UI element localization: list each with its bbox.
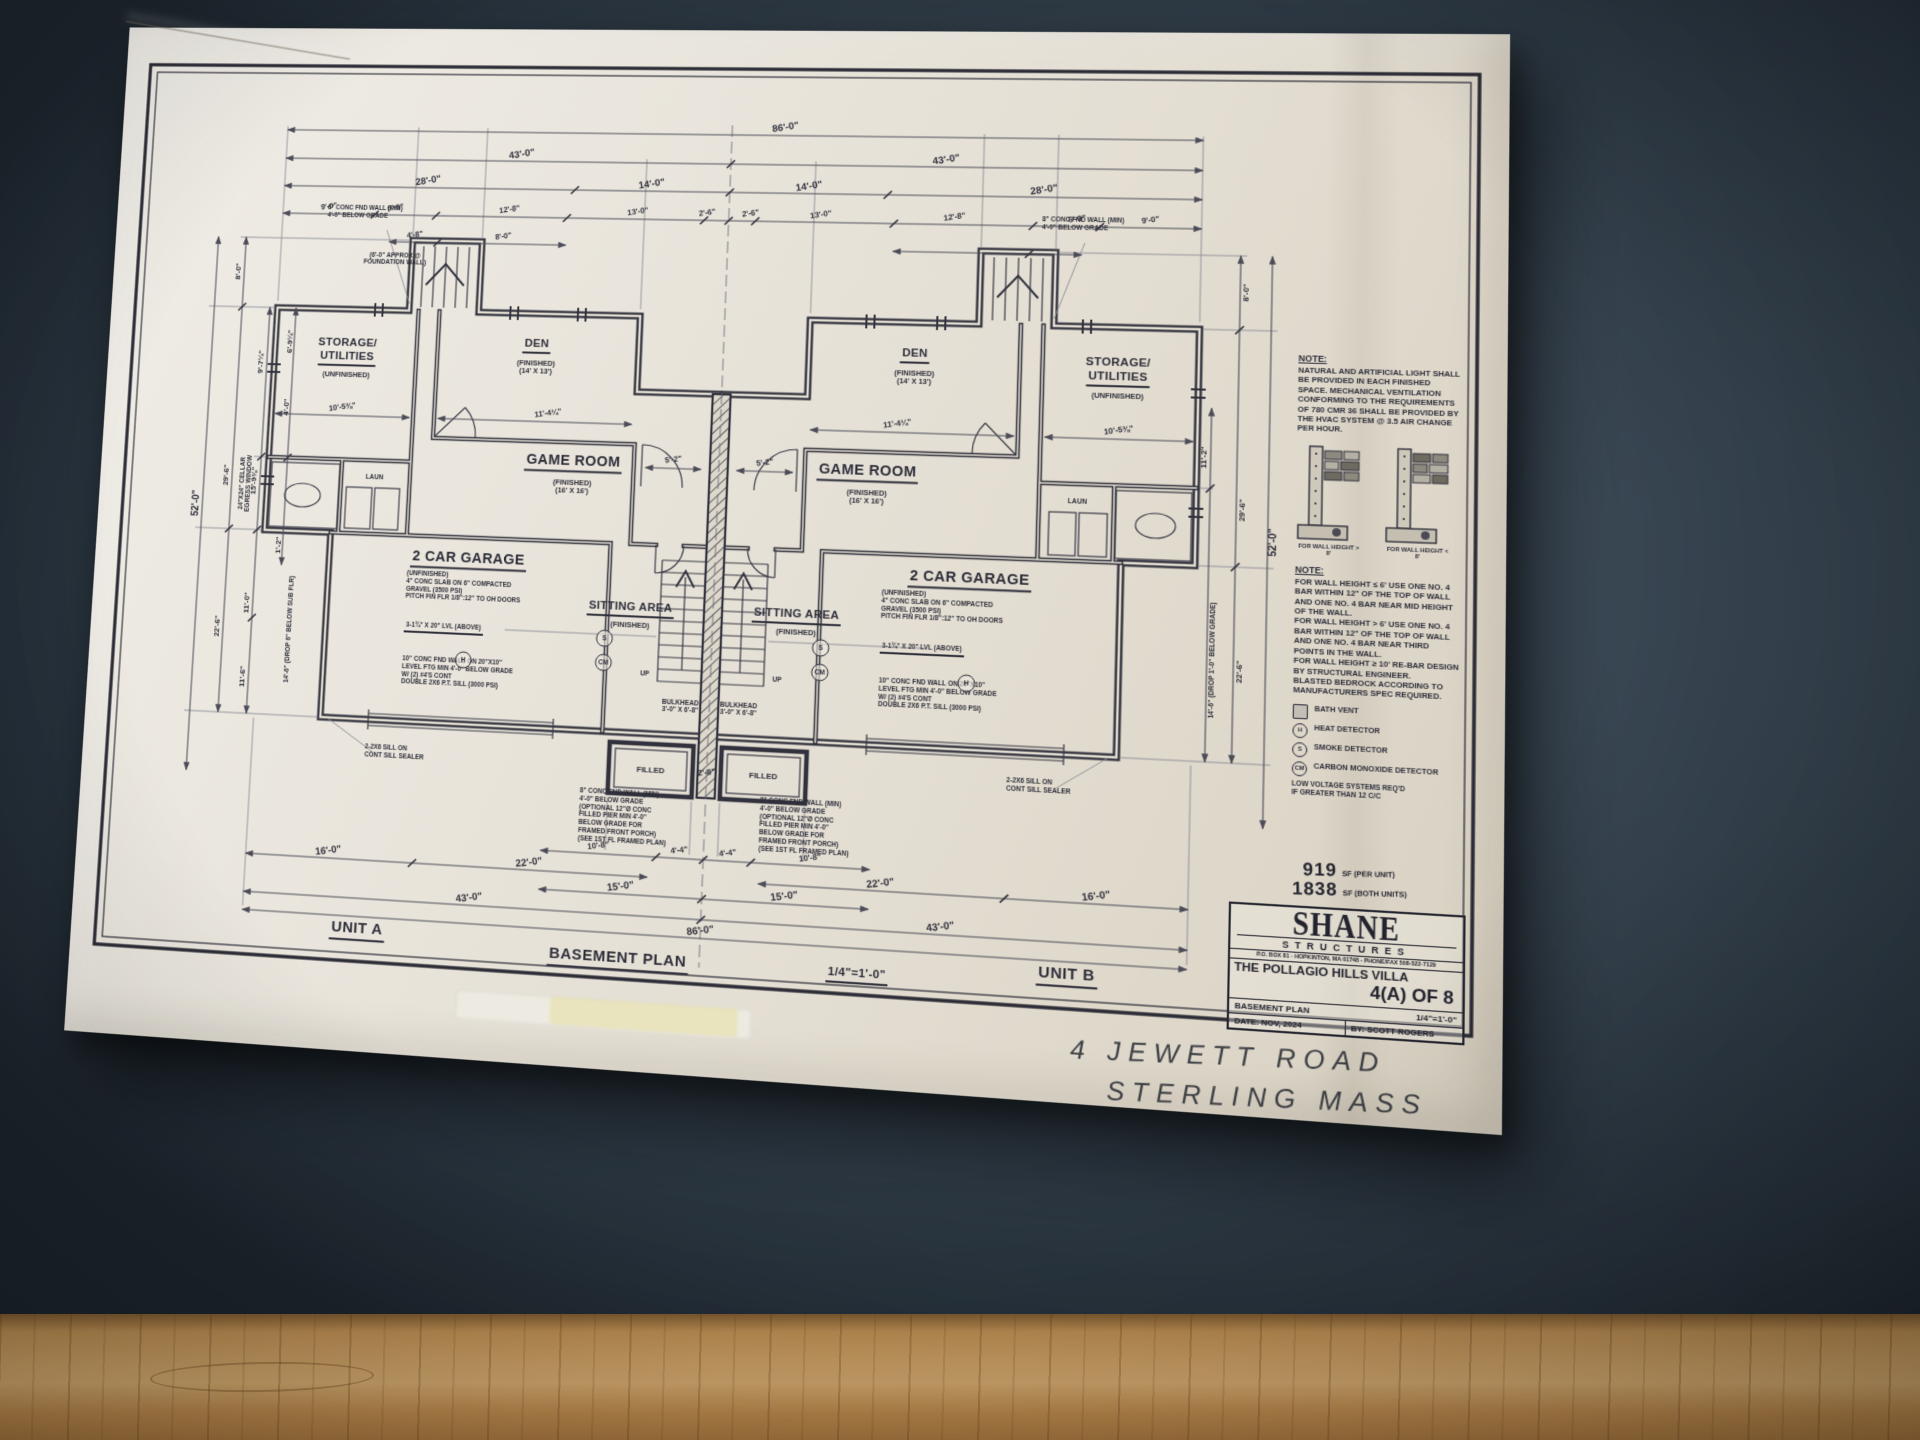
room-label-game-room: GAME ROOM	[524, 452, 623, 474]
note-rebar: FOR WALL HEIGHT ≤ 6' USE ONE NO. 4 BAR W…	[1293, 577, 1460, 703]
notes-column: NOTE: NATURAL AND ARTIFICIAL LIGHT SHALL…	[1291, 353, 1462, 806]
room-label-den: DEN	[900, 347, 930, 364]
room-sublabel: (FINISHED) (14' X 13')	[894, 369, 935, 387]
square-footage: 919 SF (PER UNIT) 1838 SF (BOTH UNITS)	[1240, 859, 1460, 903]
date-label: DATE:	[1234, 1016, 1259, 1027]
laundry-label: LAUN	[1068, 498, 1087, 506]
up-label: UP	[772, 677, 782, 685]
legend-label: HEAT DETECTOR	[1314, 724, 1380, 736]
legend-label: SMOKE DETECTOR	[1314, 743, 1388, 755]
garage-floor-note: (UNFINISHED) 4" CONC SLAB ON 6" COMPACTE…	[881, 589, 1004, 626]
room-sublabel: (FINISHED) (14' X 13')	[516, 359, 555, 376]
up-label: UP	[640, 671, 649, 679]
garage-floor-note: (UNFINISHED) 4" CONC SLAB ON 6" COMPACTE…	[405, 570, 521, 606]
smoke-detector-icon: S	[1292, 742, 1307, 758]
bulkhead-label: BULKHEAD 3'-0" X 6'-8"	[661, 698, 699, 715]
dim-label: 11'-0"	[242, 592, 252, 613]
area-per-unit-label: SF (PER UNIT)	[1342, 871, 1395, 880]
dim-label: 4'-4"	[670, 846, 688, 857]
room-label-storage: STORAGE/	[318, 336, 377, 350]
room-label-den: DEN	[522, 338, 551, 354]
dim-label: 11'-2"	[1199, 446, 1209, 468]
filled-label: FILLED	[749, 771, 778, 782]
sill-note: 2-2X6 SILL ON CONT SILL SEALER	[1006, 777, 1071, 797]
room-label-storage: STORAGE/	[1086, 355, 1151, 370]
title-block: SHANE STRUCTURES P.O. BOX 81 - HOPKINTON…	[1227, 901, 1466, 1045]
dim-label: 6'-9¼"	[286, 330, 296, 353]
legend-label: CARBON MONOXIDE DETECTOR	[1313, 762, 1438, 777]
dim-label: 11'-6"	[238, 666, 248, 687]
wooden-table-edge	[0, 1314, 1920, 1440]
paper-perspective-wrap: .bd3{stroke:#2b2b36;stroke-width:3.4;fil…	[64, 27, 1510, 1135]
room-sublabel: (FINISHED)	[776, 627, 816, 637]
title-block-scale: 1/4"=1'-0"	[1416, 1013, 1457, 1026]
area-both-label: SF (BOTH UNITS)	[1343, 890, 1407, 899]
room-sublabel: (FINISHED)	[610, 620, 649, 630]
garage-wall-note: 10" CONC FND WALL ON 20"X10" LEVEL FTG M…	[878, 677, 997, 715]
dim-label: 52'-0"	[191, 490, 203, 517]
dim-label: 4'-0"	[282, 399, 291, 416]
dim-label: 9'-7¼"	[256, 350, 266, 373]
wall-detail-drawings	[1296, 442, 1462, 548]
by-label: BY:	[1351, 1024, 1365, 1035]
room-label-storage: UTILITIES	[318, 350, 376, 367]
dim-label: 29'-6"	[222, 464, 232, 485]
filled-label: FILLED	[636, 765, 664, 776]
dim-label: 22'-6"	[213, 615, 223, 637]
blueprint-paper-sheet: .bd3{stroke:#2b2b36;stroke-width:3.4;fil…	[64, 27, 1510, 1135]
wall-detail-icon	[1384, 444, 1452, 547]
dim-label: 29'-6"	[1238, 499, 1248, 522]
unit-a-label: UNIT A	[329, 919, 385, 943]
legend: BATH VENT H HEAT DETECTOR S SMOKE DETECT…	[1291, 704, 1458, 807]
porch-foundation-note: 8" CONC FND WALL (MIN) 4'-0" BELOW GRADE…	[577, 787, 667, 848]
wall-detail-icon	[1296, 442, 1364, 544]
dim-note: (6'-0" APPROX @ FOUNDATION WALL)	[363, 251, 426, 266]
heat-detector-icon: H	[1292, 723, 1307, 739]
room-sublabel: (UNFINISHED)	[322, 370, 370, 379]
bath-vent-icon	[1293, 704, 1308, 720]
wall-detail-caption: FOR WALL HEIGHT > 8'	[1295, 543, 1362, 558]
wall-detail-caption: FOR WALL HEIGHT < 8'	[1384, 546, 1452, 561]
room-sublabel: (UNFINISHED)	[1091, 391, 1143, 401]
co-detector-icon: CM	[1292, 761, 1307, 777]
dim-label: 1'-2"	[274, 536, 283, 553]
bulkhead-label: BULKHEAD 3'-0" X 6'-8"	[719, 701, 757, 718]
area-both-value: 1838	[1292, 878, 1338, 900]
unit-b-label: UNIT B	[1036, 964, 1098, 989]
foundation-wall-note: 8" CONC FND WALL (MIN) 4'-0" BELOW GRADE	[327, 204, 403, 220]
laundry-label: LAUN	[366, 474, 384, 482]
dim-label: 52'-0"	[1268, 528, 1280, 557]
photo-scene: .bd3{stroke:#2b2b36;stroke-width:3.4;fil…	[0, 0, 1920, 1440]
dim-label: 4'-4"	[718, 849, 736, 860]
room-sublabel: (FINISHED) (16' X 16')	[846, 488, 887, 506]
room-label-game-room: GAME ROOM	[816, 462, 918, 485]
foundation-wall-note: 8" CONC FND WALL (MIN) 4'-0" BELOW GRADE	[1042, 216, 1124, 233]
date-value: NOV, 2024	[1261, 1018, 1301, 1030]
dim-label: 2'-8"	[697, 768, 715, 779]
note-light-ventilation: NATURAL AND ARTIFICIAL LIGHT SHALL BE PR…	[1297, 365, 1462, 438]
legend-label: BATH VENT	[1314, 705, 1358, 716]
sill-note: 2-2X6 SILL ON CONT SILL SEALER	[364, 743, 424, 762]
dim-label: 22'-6"	[1235, 660, 1245, 683]
area-per-unit-value: 919	[1303, 859, 1338, 880]
room-label-storage: UTILITIES	[1086, 370, 1150, 388]
room-sublabel: (FINISHED) (16' X 16')	[552, 478, 591, 496]
by-value: SCOTT ROGERS	[1367, 1025, 1434, 1039]
porch-foundation-note: 8" CONC FND WALL (MIN) 4'-0" BELOW GRADE…	[758, 797, 850, 859]
dim-label: 8'-0"	[234, 263, 243, 280]
dim-label: 8'-0"	[1242, 284, 1252, 302]
title-block-plan-name: BASEMENT PLAN	[1235, 1001, 1310, 1016]
company-name: SHANE	[1292, 907, 1400, 947]
